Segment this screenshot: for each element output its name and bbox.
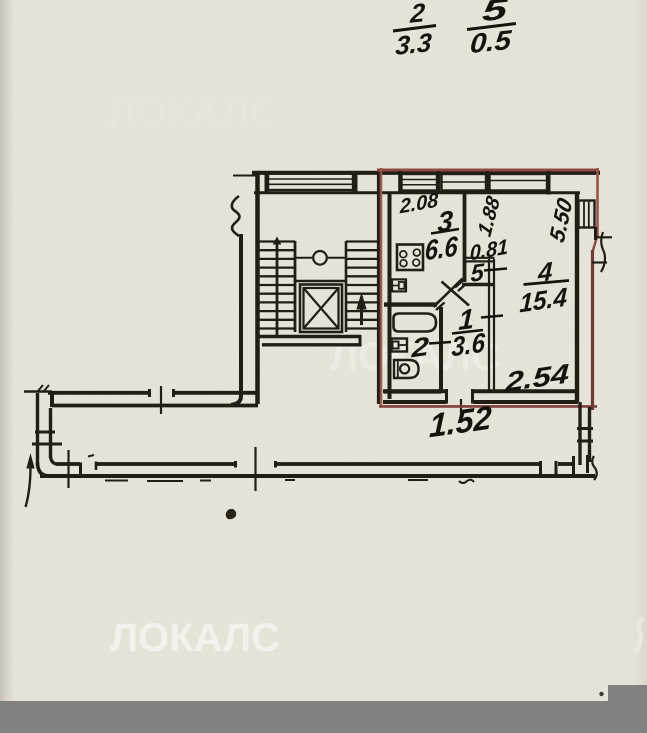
svg-text:6.6: 6.6 <box>424 230 458 267</box>
svg-text:2: 2 <box>410 332 429 364</box>
svg-text:3.3: 3.3 <box>395 27 433 61</box>
svg-text:2: 2 <box>408 0 426 29</box>
svg-text:ЛОКАЛС: ЛОКАЛС <box>108 91 278 135</box>
svg-text:5: 5 <box>470 259 485 288</box>
svg-text:3.6: 3.6 <box>451 328 486 362</box>
svg-text:ЛОКАЛС: ЛОКАЛС <box>110 616 280 660</box>
svg-text:0.5: 0.5 <box>469 25 513 60</box>
